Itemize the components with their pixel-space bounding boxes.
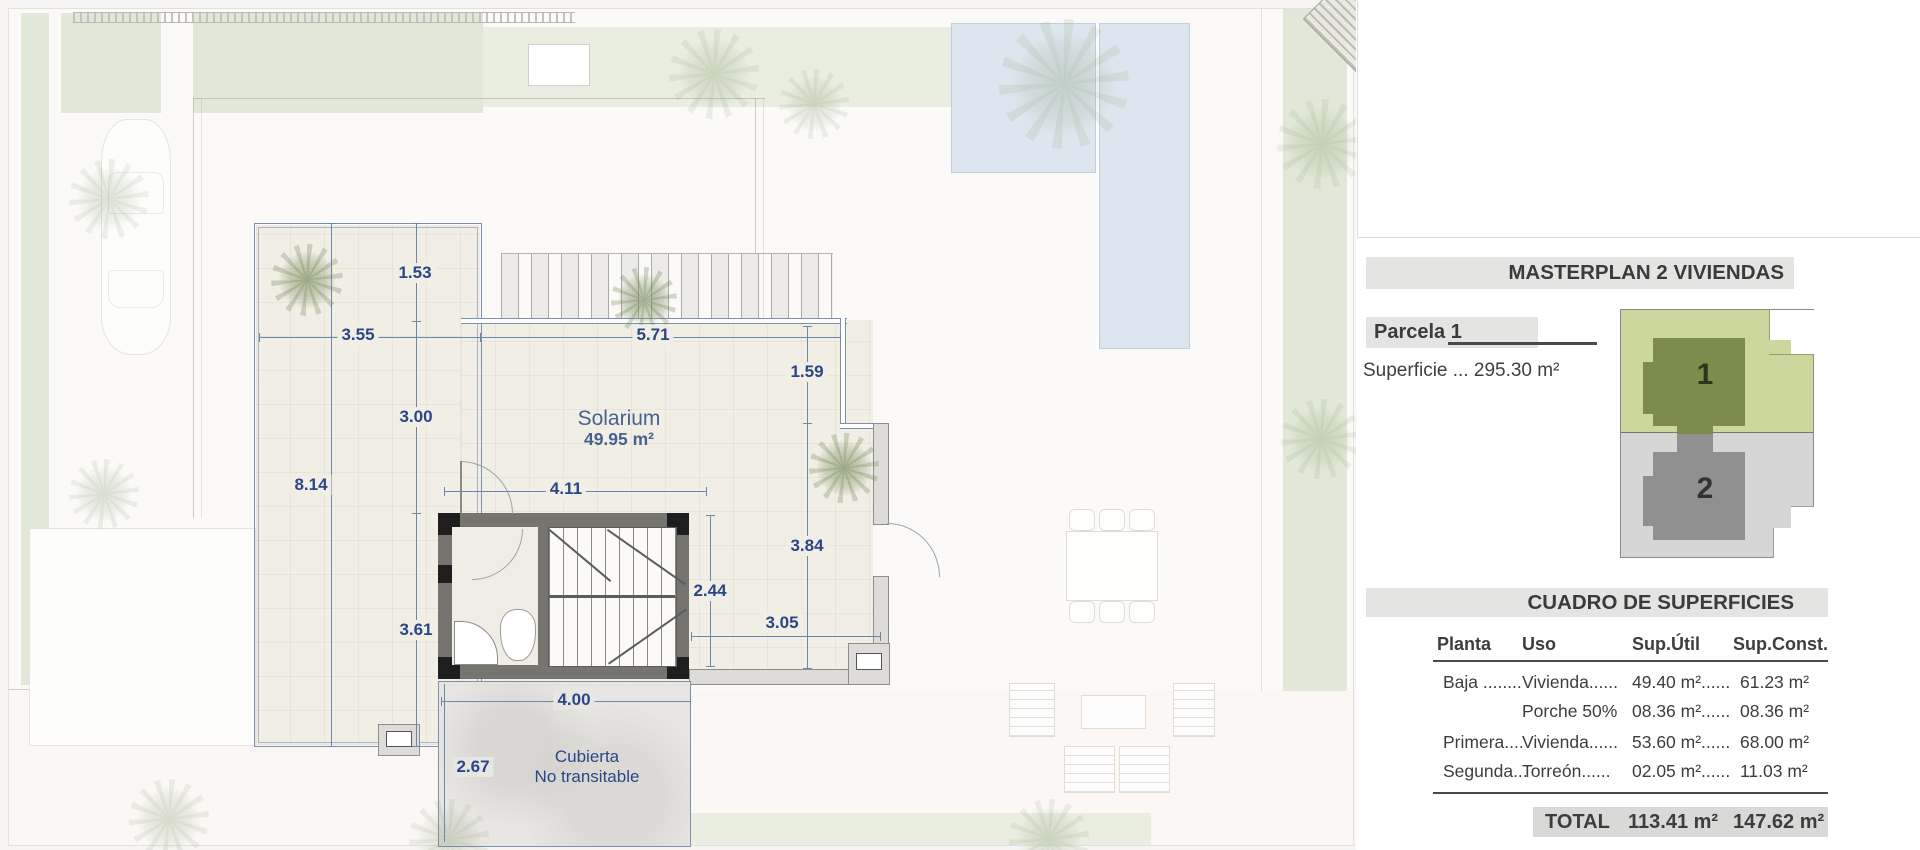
- cell-uso: Vivienda......: [1522, 672, 1618, 693]
- car-rear-window: [108, 270, 164, 308]
- cell-sup-const: 68.00 m²: [1740, 732, 1809, 753]
- parcel-2-house-wing: [1643, 476, 1663, 526]
- palm-terrace-icon: [271, 244, 343, 316]
- door-leaf-tower: [460, 461, 462, 513]
- side-table: [1081, 695, 1146, 729]
- gate-post: [528, 44, 590, 86]
- top-card: [1357, 0, 1920, 238]
- dining-table: [1066, 531, 1158, 601]
- dim-tick: [412, 513, 421, 514]
- dim-label: 5.71: [632, 325, 673, 345]
- stairs-landing: [548, 595, 675, 597]
- dim-label: 2.67: [452, 757, 493, 777]
- cell-sup-util: 08.36 m²......: [1632, 701, 1730, 722]
- masterplan-header: MASTERPLAN 2 VIVIENDAS: [1366, 257, 1794, 289]
- dim-tick: [706, 515, 715, 516]
- dim-tick: [803, 423, 812, 424]
- dim-label: 2.44: [689, 581, 730, 601]
- dim-label: 8.14: [290, 475, 331, 495]
- col-header-sup-util: Sup.Útil: [1632, 634, 1700, 655]
- palm-solarium-icon: [809, 433, 879, 503]
- dim-tick: [444, 487, 445, 496]
- dim-label: 4.00: [553, 690, 594, 710]
- dim-tick: [803, 326, 812, 327]
- parcel-2-house-stem: [1677, 434, 1713, 458]
- dining-chair: [1069, 509, 1095, 531]
- lounger: [1009, 683, 1055, 737]
- cell-planta: Baja ........: [1443, 672, 1522, 693]
- dim-tick: [412, 746, 421, 747]
- dim-line-153-300-361: [416, 223, 417, 747]
- cell-sup-const: 11.03 m²: [1740, 761, 1808, 782]
- table-rule-top: [1433, 660, 1828, 662]
- dim-tick: [441, 697, 442, 706]
- cell-uso: Porche 50%: [1522, 701, 1617, 722]
- dim-label: 3.84: [786, 536, 827, 556]
- parcel-1-house-wing: [1643, 362, 1663, 414]
- dim-label: 3.05: [761, 613, 802, 633]
- dining-chair: [1099, 601, 1125, 623]
- palm-garden-6-icon: [1277, 99, 1367, 189]
- palm-garden-5-icon: [999, 19, 1129, 149]
- dim-label: 3.61: [395, 620, 436, 640]
- palm-garden-7-icon: [1281, 399, 1361, 479]
- dim-tick: [803, 668, 812, 669]
- cell-sup-const: 08.36 m²: [1740, 701, 1809, 722]
- cubierta-label: Cubierta No transitable: [487, 747, 687, 787]
- dim-label: 1.53: [394, 263, 435, 283]
- side-panel: MASTERPLAN 2 VIVIENDAS Parcela 1 Superfi…: [1356, 0, 1920, 850]
- palm-garden-4-icon: [779, 69, 849, 139]
- parcel-map: 1 2: [1620, 309, 1814, 558]
- dim-tick: [327, 223, 336, 224]
- cubierta-label-line2: No transitable: [487, 767, 687, 787]
- cell-uso: Torreón......: [1522, 761, 1611, 782]
- solarium-label: Solarium: [539, 407, 699, 431]
- cell-uso: Vivienda......: [1522, 732, 1618, 753]
- superficie-text: Superficie ... 295.30 m²: [1363, 360, 1623, 382]
- palm-garden-8-icon: [129, 779, 209, 850]
- cell-sup-const: 61.23 m²: [1740, 672, 1809, 693]
- cell-planta: Primera....: [1443, 732, 1524, 753]
- dim-label: 3.55: [337, 325, 378, 345]
- total-label: TOTAL: [1545, 811, 1610, 834]
- stair-tower: [438, 513, 689, 679]
- dim-tick: [327, 746, 336, 747]
- total-util: 113.41 m²: [1628, 811, 1718, 834]
- entry-gate: [73, 12, 575, 23]
- dim-tick: [840, 333, 841, 342]
- parcela-underline: [1448, 342, 1597, 345]
- door-arc-garden: [887, 523, 940, 577]
- plot-line-right: [1261, 9, 1262, 691]
- lounger: [1173, 683, 1215, 737]
- bathroom-wall: [538, 527, 548, 665]
- map-notch-bottom-step: [1773, 506, 1791, 528]
- dim-label: 4.11: [546, 479, 586, 499]
- lounger: [1119, 746, 1170, 793]
- col-header-planta: Planta: [1437, 634, 1491, 655]
- dim-label: 1.59: [786, 362, 827, 382]
- dim-tick: [880, 632, 881, 641]
- ghost-wall-left-b: [201, 98, 202, 518]
- stairs-lower-flight: [548, 597, 677, 667]
- cubierta-label-line1: Cubierta: [487, 747, 687, 767]
- ghost-wall-left-a: [193, 98, 194, 518]
- lounger: [1064, 746, 1115, 793]
- parcel-boundary: [1621, 432, 1813, 433]
- toilet: [500, 609, 536, 661]
- dim-tick: [412, 223, 421, 224]
- cuadro-header: CUADRO DE SUPERFICIES: [1366, 588, 1828, 617]
- grass-strip-top-a: [61, 13, 161, 113]
- table-rule-bottom: [1433, 792, 1828, 794]
- dim-tick: [690, 697, 691, 706]
- total-bar: TOTAL 113.41 m² 147.62 m²: [1533, 807, 1828, 837]
- parcel-1-label: 1: [1675, 358, 1735, 392]
- cell-sup-util: 49.40 m²......: [1632, 672, 1730, 693]
- dining-chair: [1069, 601, 1095, 623]
- solarium-area: 49.95 m²: [539, 429, 699, 450]
- neighbor-patio: [29, 528, 256, 746]
- cell-planta: Segunda...: [1443, 761, 1528, 782]
- palm-pergola-icon: [611, 267, 677, 333]
- palm-garden-3-icon: [669, 29, 759, 119]
- dim-line-305: [691, 636, 881, 637]
- dim-label: 3.00: [395, 407, 436, 427]
- cell-sup-util: 02.05 m²......: [1632, 761, 1730, 782]
- col-header-uso: Uso: [1522, 634, 1556, 655]
- dining-chair: [1129, 601, 1155, 623]
- dim-line-267: [444, 684, 445, 842]
- dim-tick: [691, 632, 692, 641]
- map-notch-top-step: [1769, 340, 1791, 354]
- site-plan: Cubierta No transitable: [8, 8, 1354, 846]
- col-header-sup-const: Sup.Const.: [1733, 634, 1828, 655]
- palm-garden-2-icon: [69, 459, 139, 529]
- cell-sup-util: 53.60 m²......: [1632, 732, 1730, 753]
- dining-chair: [1129, 509, 1155, 531]
- dim-tick: [706, 487, 707, 496]
- dim-tick: [259, 333, 260, 342]
- dim-tick: [706, 666, 715, 667]
- parcel-2-label: 2: [1675, 472, 1735, 506]
- dining-chair: [1099, 509, 1125, 531]
- vent-window-left: [386, 731, 412, 747]
- palm-garden-1-icon: [69, 159, 149, 239]
- masterplan-sheet: Cubierta No transitable: [0, 0, 1920, 850]
- dim-tick: [412, 321, 421, 322]
- vent-window: [856, 653, 882, 670]
- total-const: 147.62 m²: [1733, 811, 1824, 834]
- dim-tick: [480, 333, 481, 342]
